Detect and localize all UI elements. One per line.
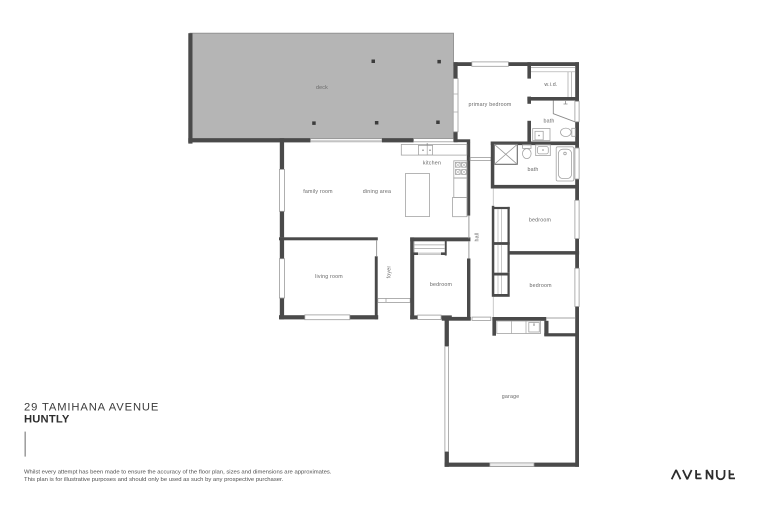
- svg-text:bath: bath: [543, 119, 554, 125]
- svg-text:HUNTLY: HUNTLY: [24, 414, 70, 426]
- svg-text:bedroom: bedroom: [430, 282, 453, 288]
- svg-text:29 TAMIHANA AVENUE: 29 TAMIHANA AVENUE: [24, 402, 159, 414]
- svg-text:primary bedroom: primary bedroom: [468, 102, 511, 108]
- svg-text:hall: hall: [475, 232, 481, 241]
- svg-text:kitchen: kitchen: [423, 161, 441, 167]
- svg-text:Whilst every attempt has been: Whilst every attempt has been made to en…: [24, 470, 332, 476]
- svg-text:deck: deck: [316, 85, 328, 91]
- svg-text:bath: bath: [527, 167, 538, 173]
- svg-text:living room: living room: [315, 274, 343, 280]
- svg-text:foyer: foyer: [387, 266, 393, 279]
- svg-text:dining area: dining area: [363, 189, 391, 195]
- svg-text:family room: family room: [303, 189, 333, 195]
- svg-text:bedroom: bedroom: [529, 283, 552, 289]
- svg-text:bedroom: bedroom: [529, 218, 552, 224]
- svg-text:garage: garage: [502, 394, 520, 400]
- svg-text:This plan is for illustrative: This plan is for illustrative purposes a…: [24, 477, 284, 483]
- svg-text:w.i.d.: w.i.d.: [544, 82, 557, 88]
